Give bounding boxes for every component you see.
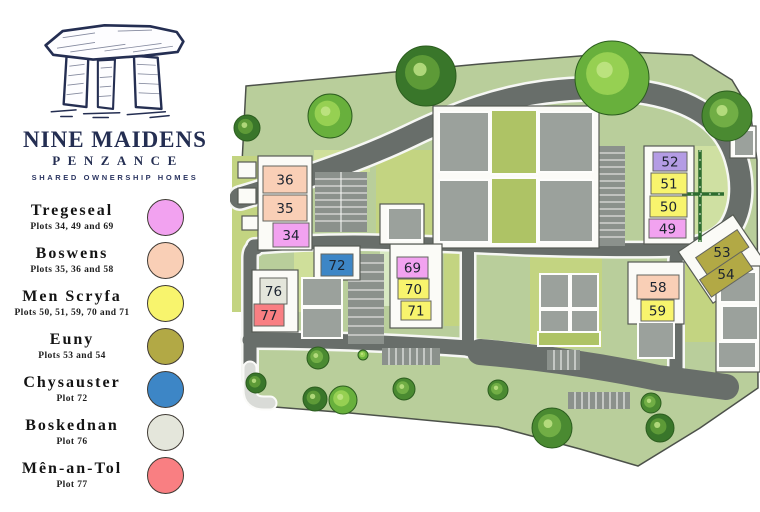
color-swatch xyxy=(147,457,184,494)
dolmen-logo-icon xyxy=(38,14,190,126)
tree-icon xyxy=(358,350,368,360)
svg-text:59: 59 xyxy=(649,304,666,320)
legend-item-boswens: Boswens Plots 35, 36 and 58 xyxy=(0,239,230,282)
tree-icon xyxy=(641,393,661,413)
plot-label-52: 52 xyxy=(653,152,687,171)
svg-text:69: 69 xyxy=(404,261,421,277)
tree-icon xyxy=(702,91,752,141)
legend-plots: Plots 50, 51, 59, 70 and 71 xyxy=(4,308,140,318)
legend-name: Euny xyxy=(4,332,140,349)
brand-subtitle: PENZANCE xyxy=(0,153,230,169)
plot-label-35: 35 xyxy=(263,195,307,221)
legend-plots: Plots 34, 49 and 69 xyxy=(4,222,140,232)
tree-icon xyxy=(532,408,572,448)
legend-item-men-scryfa: Men Scryfa Plots 50, 51, 59, 70 and 71 xyxy=(0,282,230,325)
brand-block: NINE MAIDENS PENZANCE SHARED OWNERSHIP H… xyxy=(0,128,230,182)
plot-label-72: 72 xyxy=(321,254,353,276)
plot-label-76: 76 xyxy=(260,278,287,304)
tree-icon xyxy=(575,41,649,115)
legend-name: Men Scryfa xyxy=(4,289,140,306)
svg-text:52: 52 xyxy=(661,155,678,171)
tree-icon xyxy=(308,94,352,138)
tree-icon xyxy=(246,373,266,393)
brand-tagline: SHARED OWNERSHIP HOMES xyxy=(0,173,230,182)
svg-text:50: 50 xyxy=(660,200,677,216)
tree-icon xyxy=(303,387,327,411)
tree-icon xyxy=(488,380,508,400)
legend-plots: Plot 76 xyxy=(4,437,140,447)
legend-item-boskednan: Boskednan Plot 76 xyxy=(0,411,230,454)
plot-label-70: 70 xyxy=(398,279,429,299)
tree-icon xyxy=(393,378,415,400)
legend-plots: Plot 77 xyxy=(4,480,140,490)
legend-name: Chysauster xyxy=(4,375,140,392)
svg-text:77: 77 xyxy=(260,308,277,324)
plot-label-69: 69 xyxy=(397,257,428,278)
svg-text:51: 51 xyxy=(660,177,677,193)
svg-text:49: 49 xyxy=(659,222,676,238)
svg-text:71: 71 xyxy=(407,304,424,320)
legend-item-men-an-tol: Mên-an-Tol Plot 77 xyxy=(0,454,230,497)
color-swatch xyxy=(147,371,184,408)
legend-plots: Plots 53 and 54 xyxy=(4,351,140,361)
plot-label-58: 58 xyxy=(637,275,679,299)
plot-label-59: 59 xyxy=(641,300,674,321)
tree-icon xyxy=(329,386,357,414)
svg-text:34: 34 xyxy=(282,228,299,244)
site-map: 3635345251504953546970717276775859 xyxy=(230,0,760,512)
legend-name: Tregeseal xyxy=(4,203,140,220)
color-swatch xyxy=(147,414,184,451)
svg-text:35: 35 xyxy=(276,201,293,217)
page-title: NINE MAIDENS xyxy=(0,128,230,151)
color-swatch xyxy=(147,199,184,236)
plot-label-71: 71 xyxy=(401,301,431,320)
legend-plots: Plot 72 xyxy=(4,394,140,404)
color-swatch xyxy=(147,328,184,365)
plot-label-77: 77 xyxy=(254,304,284,326)
tree-icon xyxy=(234,115,260,141)
svg-text:58: 58 xyxy=(649,280,666,296)
svg-text:72: 72 xyxy=(328,258,345,274)
plot-label-34: 34 xyxy=(273,223,309,247)
site-plan-page: NINE MAIDENS PENZANCE SHARED OWNERSHIP H… xyxy=(0,0,760,512)
plot-label-50: 50 xyxy=(650,196,687,217)
legend-plots: Plots 35, 36 and 58 xyxy=(4,265,140,275)
legend-name: Boskednan xyxy=(4,418,140,435)
tree-icon xyxy=(396,46,456,106)
plot-type-legend: Tregeseal Plots 34, 49 and 69 Boswens Pl… xyxy=(0,196,230,497)
legend-item-tregeseal: Tregeseal Plots 34, 49 and 69 xyxy=(0,196,230,239)
svg-text:54: 54 xyxy=(717,267,734,283)
legend-item-chysauster: Chysauster Plot 72 xyxy=(0,368,230,411)
svg-text:70: 70 xyxy=(405,282,422,298)
tree-icon xyxy=(646,414,674,442)
plot-label-36: 36 xyxy=(263,166,307,193)
svg-text:76: 76 xyxy=(265,284,282,300)
tree-icon xyxy=(307,347,329,369)
plot-label-51: 51 xyxy=(651,173,687,194)
svg-text:53: 53 xyxy=(713,245,730,261)
legend-name: Mên-an-Tol xyxy=(4,461,140,478)
legend-item-euny: Euny Plots 53 and 54 xyxy=(0,325,230,368)
svg-text:36: 36 xyxy=(276,173,293,189)
legend-name: Boswens xyxy=(4,246,140,263)
color-swatch xyxy=(147,242,184,279)
color-swatch xyxy=(147,285,184,322)
brand-sidebar: NINE MAIDENS PENZANCE SHARED OWNERSHIP H… xyxy=(0,0,230,512)
plot-label-49: 49 xyxy=(649,219,686,238)
